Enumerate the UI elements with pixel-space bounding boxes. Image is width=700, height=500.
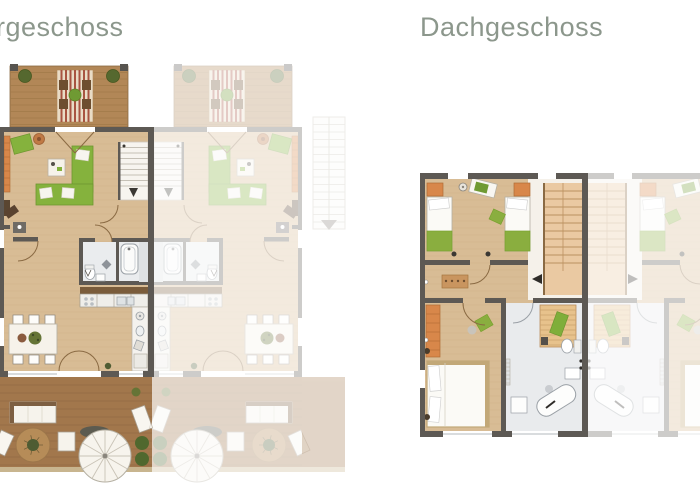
balcony-post: [174, 64, 182, 71]
cooktop-knob: [161, 315, 163, 317]
wall: [420, 173, 588, 179]
dining-chair: [247, 315, 257, 324]
table-deco: [57, 167, 62, 171]
pillow: [507, 198, 528, 210]
flower-dot: [263, 339, 265, 341]
stair-post: [123, 145, 126, 148]
toilet-tank: [574, 340, 581, 353]
fridge: [134, 354, 147, 368]
table-deco: [51, 162, 55, 166]
window: [420, 370, 425, 388]
dining-chair: [45, 355, 55, 364]
knob: [445, 280, 447, 282]
wall: [642, 260, 680, 265]
parasol-pole: [195, 454, 200, 459]
cushion: [39, 187, 52, 199]
pillow: [428, 397, 441, 423]
window: [298, 230, 302, 248]
toilet-tank: [589, 340, 596, 353]
bush: [153, 452, 167, 466]
balcony-post: [120, 64, 128, 71]
bed-frame: [681, 361, 685, 427]
flower-dot: [268, 334, 270, 336]
dining-chair: [279, 355, 289, 364]
sauna-heater: [541, 337, 548, 345]
washbasin: [565, 368, 580, 379]
shower-niche: [154, 242, 163, 282]
wall: [669, 298, 685, 303]
hob-ring: [84, 297, 88, 301]
terrace-door-gap: [207, 127, 247, 132]
deck-edge: [302, 467, 345, 472]
knob: [451, 280, 453, 282]
plant: [271, 70, 284, 83]
window: [614, 173, 632, 179]
wall: [588, 298, 637, 303]
coffee-table: [48, 159, 65, 176]
dining-chair: [13, 355, 23, 364]
balcony-post: [284, 64, 292, 71]
left-floorplan: [0, 60, 350, 500]
dachgeschoss-floorplan: [415, 165, 700, 450]
knob: [463, 280, 465, 282]
cushion: [228, 187, 241, 198]
bed-frame: [427, 361, 489, 365]
kitchen-counter-edge: [154, 287, 222, 294]
nightstand: [514, 183, 530, 196]
bath-wall: [112, 238, 150, 242]
plant: [183, 70, 196, 83]
terrace-chair: [211, 80, 220, 90]
flowers: [261, 332, 274, 345]
toy-dot: [462, 186, 464, 188]
hob-ring: [214, 297, 218, 301]
sink: [197, 274, 206, 281]
blanket: [505, 231, 530, 251]
wall: [582, 173, 700, 179]
terrace-chair: [59, 80, 68, 90]
sauna-heater: [622, 337, 629, 345]
wall: [13, 237, 38, 242]
coffee-table: [237, 159, 254, 176]
shower-tray: [643, 397, 659, 413]
bed-frame: [485, 361, 489, 427]
toilet: [562, 339, 573, 353]
terrace-chair: [82, 80, 91, 90]
tub-faucet: [128, 248, 131, 251]
toy: [680, 252, 685, 257]
hob-ring: [84, 302, 88, 306]
bath-wall: [152, 238, 190, 242]
bath-wall: [219, 238, 223, 285]
terrace-table: [69, 89, 81, 101]
french-door-gap: [201, 371, 245, 377]
dining-chair: [263, 315, 273, 324]
wall: [501, 298, 506, 431]
nightstand: [640, 183, 656, 196]
plant-pot: [105, 363, 111, 369]
terrace-chair: [82, 99, 91, 109]
window: [0, 230, 4, 248]
kitchen-sink: [127, 297, 134, 305]
blanket: [640, 231, 665, 251]
hall-table-deco: [18, 225, 22, 229]
plant-pot: [191, 363, 197, 369]
fridge: [155, 354, 168, 368]
terrace-chair: [234, 99, 243, 109]
left-floorplan-title: rgeschoss: [0, 14, 124, 41]
kitchen-sink: [168, 297, 175, 305]
parasol-pole: [103, 454, 108, 459]
cushion: [249, 187, 262, 199]
side-table-deco: [37, 137, 41, 141]
bath-wall: [79, 238, 83, 285]
neighbor-garden: [302, 377, 345, 467]
outdoor-sofa-back: [246, 402, 292, 406]
wall: [425, 298, 463, 303]
toy: [486, 252, 491, 257]
stair-railing: [543, 183, 545, 295]
outdoor-table: [58, 432, 75, 451]
flowers: [276, 334, 285, 343]
party-wall: [582, 173, 588, 437]
kitchen-basin: [136, 326, 144, 336]
stair-railing: [625, 183, 627, 295]
terrace-chair: [59, 99, 68, 109]
hob-ring: [214, 302, 218, 306]
washbasin: [590, 368, 605, 379]
bath-wall: [116, 242, 119, 282]
plant: [19, 70, 32, 83]
outdoor-sofa-back: [10, 402, 56, 406]
outdoor-table: [227, 432, 244, 451]
pillow: [643, 198, 664, 210]
wall: [420, 173, 425, 437]
wall: [664, 298, 669, 431]
flower-dot: [32, 334, 34, 336]
wall: [533, 298, 582, 303]
kitchen-counter-edge: [80, 287, 148, 294]
balcony-post: [10, 64, 18, 71]
plant: [263, 439, 275, 451]
wall: [490, 260, 528, 265]
plant: [132, 388, 141, 397]
hall-table-deco: [281, 225, 285, 229]
bush: [135, 452, 149, 466]
bath-wall: [183, 242, 186, 282]
hob-ring: [208, 297, 212, 301]
toilet-tank: [208, 265, 217, 269]
main-unit: [420, 173, 588, 437]
dining-chair: [45, 315, 55, 324]
pillow: [429, 198, 450, 210]
wall: [264, 237, 289, 242]
sink: [96, 274, 105, 281]
hob-ring: [90, 297, 94, 301]
clothes-pile: [468, 326, 477, 335]
dining-chair: [29, 315, 39, 324]
window: [0, 318, 4, 346]
dining-chair: [13, 315, 23, 324]
table-deco: [240, 167, 245, 171]
shower-tray: [511, 397, 527, 413]
dining-chair: [263, 355, 273, 364]
dining-chair: [247, 355, 257, 364]
hob-ring: [90, 302, 94, 306]
dachgeschoss-title: Dachgeschoss: [420, 14, 603, 41]
terrace-table: [221, 89, 233, 101]
flowers: [18, 334, 27, 343]
cooktop-knob: [139, 315, 141, 317]
dining-chair: [29, 355, 39, 364]
deck-edge: [150, 467, 302, 472]
hob-ring: [208, 302, 212, 306]
outdoor-sofa-arm: [10, 402, 14, 423]
deck-edge: [0, 467, 152, 472]
nightstand: [427, 183, 443, 196]
terrace-chair: [234, 80, 243, 90]
stair-post: [177, 145, 180, 148]
window: [538, 173, 556, 179]
tub-faucet: [172, 248, 175, 251]
main-unit: [0, 64, 154, 482]
bush: [135, 436, 149, 450]
neighbor-unit-mirrored: [148, 64, 310, 482]
wall: [425, 260, 470, 265]
neighbor-extras: [302, 117, 345, 472]
kitchen-basin: [158, 326, 166, 336]
flowers: [29, 332, 42, 345]
side-table-deco: [261, 137, 265, 141]
plant: [27, 439, 39, 451]
outdoor-sofa-arm: [288, 402, 292, 423]
window: [298, 318, 302, 346]
wall: [485, 298, 501, 303]
knob: [457, 280, 459, 282]
french-door-gap: [57, 371, 101, 377]
kitchen-sink: [176, 297, 185, 305]
toy: [452, 252, 457, 257]
dining-chair: [279, 315, 289, 324]
blanket: [427, 231, 452, 251]
flower-dot: [37, 339, 39, 341]
page: rgeschoss Dachgeschoss: [0, 0, 700, 500]
plant: [107, 70, 120, 83]
pillow: [428, 366, 441, 392]
terrace-chair: [211, 99, 220, 109]
neighbor-unit-mirrored: [582, 173, 700, 437]
shower-niche: [139, 242, 148, 282]
plant: [162, 388, 171, 397]
stair-wall: [182, 142, 185, 200]
window: [448, 173, 468, 179]
kitchen-sink: [117, 297, 126, 305]
table-deco: [247, 162, 251, 166]
stair-wall: [118, 142, 121, 200]
party-wall: [148, 127, 154, 376]
terrace-door-gap: [55, 127, 95, 132]
bush: [153, 436, 167, 450]
toilet-tank: [85, 265, 94, 269]
cushion: [62, 187, 75, 198]
toilet: [598, 339, 609, 353]
